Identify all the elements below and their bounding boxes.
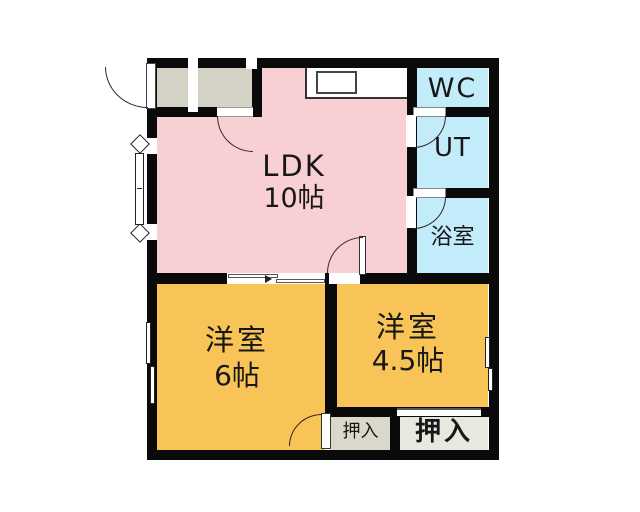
- wall-wet-column-left: [407, 58, 417, 284]
- wall-closet-divider: [390, 414, 400, 460]
- top-wall-gap: [246, 57, 257, 69]
- label-closet-large: 押入: [400, 419, 488, 445]
- sliding-door-panel-right: [276, 279, 325, 283]
- label-ldk: LDK: [234, 152, 354, 181]
- wall-entrance-bottom: [147, 107, 217, 117]
- label-western-4-5: 洋室: [348, 313, 468, 342]
- kitchen-sink: [316, 71, 357, 94]
- wall-bottom: [147, 450, 499, 460]
- label-bathroom: 浴室: [417, 227, 488, 249]
- bay-window-glass: [135, 153, 144, 225]
- wall-between-rooms: [325, 273, 337, 413]
- bay-window-mullion: [137, 188, 142, 189]
- entrance-step-divider: [188, 57, 198, 112]
- label-western-4-5-size: 4.5帖: [348, 347, 468, 375]
- wall-top: [147, 58, 499, 68]
- western-4-5-window-lower: [488, 368, 493, 391]
- label-ldk-size: 10帖: [234, 185, 354, 212]
- sliding-door-arrow-icon: [265, 275, 272, 283]
- label-closet-small: 押入: [331, 423, 390, 441]
- label-ut: UT: [417, 135, 488, 161]
- entrance-door-swing-arc: [105, 67, 148, 108]
- wall-right: [489, 58, 499, 460]
- closet-sliding-door: [397, 408, 481, 416]
- label-wc: WC: [417, 75, 488, 102]
- label-western-6: 洋室: [177, 326, 297, 355]
- western-4-5-window-upper: [485, 337, 490, 368]
- room-entrance: [157, 68, 252, 107]
- western-4-5-door-opening: [329, 273, 360, 284]
- label-western-6-size: 6帖: [177, 362, 297, 390]
- western-6-window-upper: [146, 322, 151, 364]
- closet-door-leaf: [321, 413, 331, 449]
- western-6-window-lower: [150, 366, 155, 404]
